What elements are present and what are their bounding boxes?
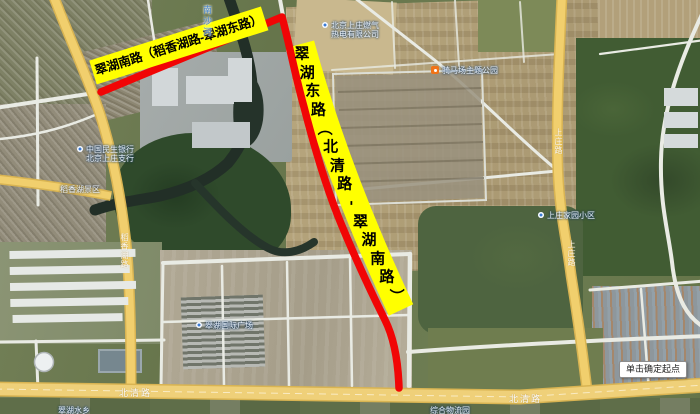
poi-dot-icon: [322, 22, 328, 28]
poi-dot-icon: [196, 322, 202, 328]
route-side-label-char: 北: [323, 140, 338, 155]
route-side-label-char: 路: [311, 102, 326, 117]
road-label-east-2: 上庄路: [566, 240, 577, 267]
poi-clipped-south-1: 翠湖水乡: [58, 406, 90, 414]
route-side-label-char: ）: [389, 288, 404, 303]
tank-structure: [35, 353, 54, 372]
poi-plaza: 翠湖国际广场: [205, 321, 253, 330]
poi-scenic: 稻香湖景区: [60, 185, 100, 194]
poi-dot-icon: [77, 146, 83, 152]
route-side-label-char: （: [317, 121, 332, 136]
route-side-label-char: 路: [337, 177, 352, 192]
route-side-label-char: 路: [379, 270, 394, 285]
poi-clipped-south-2: 综合物流园: [430, 406, 470, 414]
poi-bank: 中国民生银行北京上庄支行: [86, 145, 134, 163]
poi-village: 上庄家园小区: [547, 211, 595, 220]
route-side-label-char: -: [345, 200, 360, 205]
poi-dot-icon: [538, 212, 544, 218]
poi-marker-icon: [431, 66, 439, 74]
route-side-label-char: 清: [330, 158, 345, 173]
road-label-beiqing-east: 北清路: [509, 392, 542, 405]
road-label-beiqing-west: 北清路: [119, 386, 152, 399]
route-side-label-char: 南: [370, 251, 385, 266]
road-label-east-1: 上庄路: [553, 128, 564, 155]
measure-tooltip: 单击确定起点: [619, 361, 687, 378]
route-side-label-char: 东: [305, 84, 320, 99]
road-label-daoxianghu: 稻香湖路: [119, 233, 130, 269]
route-side-label-char: 翠: [353, 214, 368, 229]
river-label: 南沙河: [201, 5, 214, 38]
poi-power-plant: 北京上庄燃气热电有限公司: [331, 21, 379, 39]
river-branch: [195, 183, 314, 252]
route-side-label-char: 湖: [300, 65, 315, 80]
poi-riding-park: 骑马场主题公园: [442, 66, 498, 75]
satellite-map[interactable]: 翠湖南路（稻香湖路-翠湖东路） 翠湖东路（北清路-翠湖南路） 北清路 北清路 稻…: [0, 0, 700, 414]
route-side-label-char: 翠: [294, 47, 309, 62]
route-side-label-char: 湖: [361, 233, 376, 248]
